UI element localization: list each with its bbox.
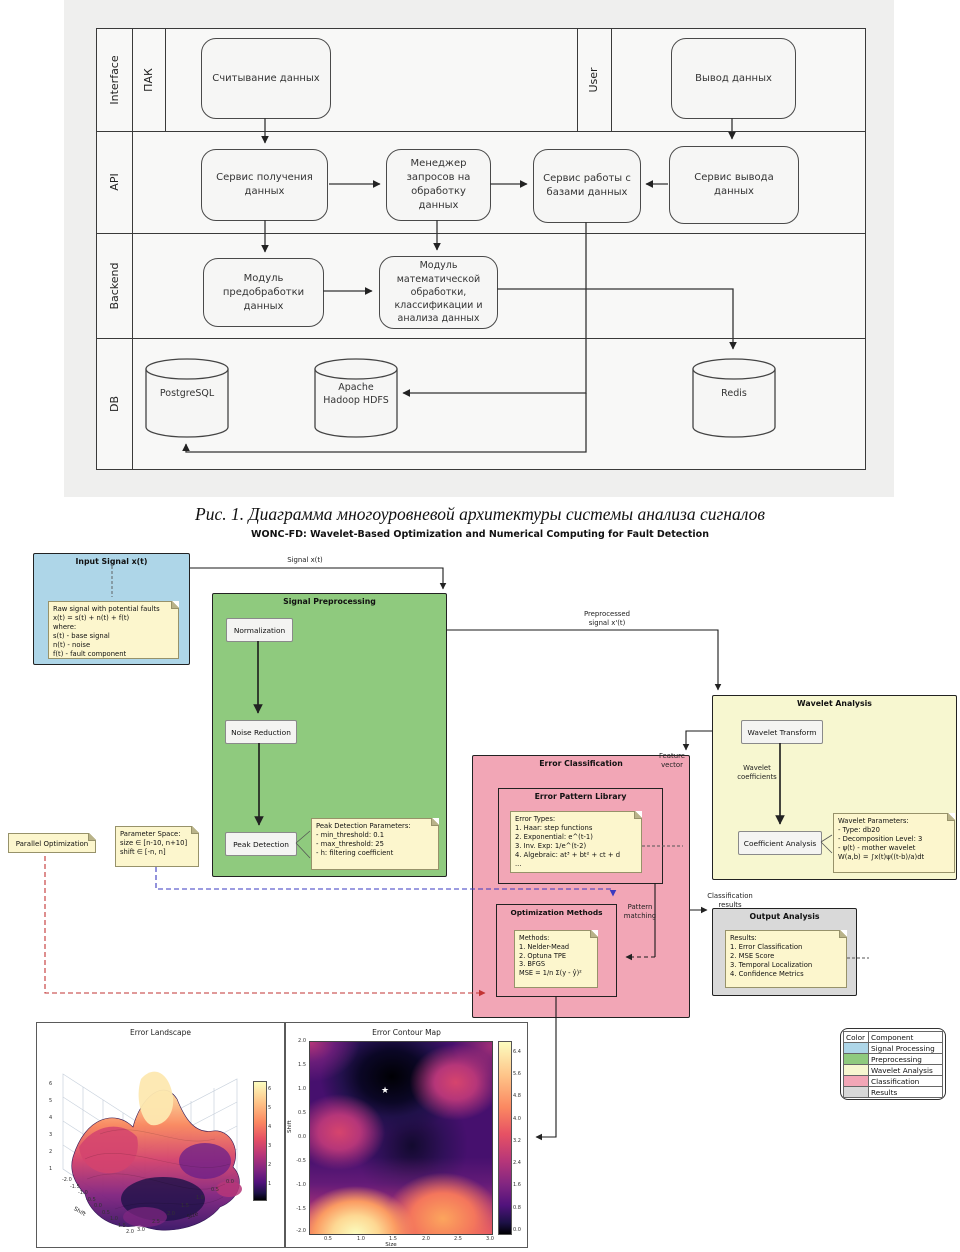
node-preprocessing-module: Модуль предобработки данных [203, 258, 324, 327]
flowchart-title: WONC-FD: Wavelet-Based Optimization and … [0, 529, 960, 540]
note-line: Peak Detection Parameters: [316, 822, 434, 831]
label-line: coefficients [733, 773, 781, 782]
cluster-input-signal: Input Signal x(t) Raw signal with potent… [33, 553, 190, 665]
note-line: 1. Error Classification [730, 943, 842, 952]
surface-colorbar [253, 1081, 267, 1201]
note-line: 2. MSE Score [730, 952, 842, 961]
parameter-space-note: Parameter Space: size ∈ [n-10, n+10] shi… [115, 826, 199, 867]
note-line: 3. BFGS [519, 960, 593, 969]
cbar-tick: 5.6 [513, 1071, 521, 1077]
shift-tick: 1.0 [110, 1216, 118, 1222]
step-coefficient-analysis: Coefficient Analysis [738, 831, 822, 855]
note-line: ... [515, 860, 637, 869]
label-line: results [700, 901, 760, 910]
layer-label-interface: Interface [108, 50, 122, 110]
inner-title: Error Pattern Library [499, 792, 662, 801]
note-line: Error Types: [515, 815, 637, 824]
legend-header-color: Color [844, 1032, 869, 1043]
cbar-tick: 4 [268, 1124, 271, 1130]
cbar-tick: 3.2 [513, 1138, 521, 1144]
edge-label-feature-vector: Feature vector [650, 752, 694, 770]
note-line: Parameter Space: [120, 830, 194, 839]
contour-xlabel: Size [385, 1242, 396, 1248]
parallel-optimization-note: Parallel Optimization [8, 833, 96, 853]
layer-label-db: DB [108, 374, 122, 434]
architecture-diagram: Interface API Backend DB ПАК User Считыв… [96, 28, 866, 470]
cbar-tick: 5 [268, 1105, 271, 1111]
z-tick: 1 [49, 1166, 52, 1172]
error-contour-panel: Error Contour Map ★ 2.0 1.5 1.0 0.5 0.0 … [285, 1022, 528, 1248]
shift-tick: 0.5 [102, 1210, 110, 1216]
label-line: Wavelet [733, 764, 781, 773]
note-line: - min_threshold: 0.1 [316, 831, 434, 840]
note-line: 3. Temporal Localization [730, 961, 842, 970]
node-request-manager: Менеджер запросов на обработку данных [386, 149, 491, 221]
db-postgresql: PostgreSQL [144, 356, 230, 440]
note-line: 1. Nelder-Mead [519, 943, 593, 952]
note-line: shift ∈ [-n, n] [120, 848, 194, 857]
node-math-module: Модуль математической обработки, классиф… [379, 256, 498, 329]
node-output-data: Вывод данных [671, 38, 796, 119]
note-line: n(t) - noise [53, 641, 174, 650]
user-lane-divider [611, 29, 612, 131]
note-line: 4. Confidence Metrics [730, 970, 842, 979]
cluster-signal-preprocessing: Signal Preprocessing Normalization Noise… [212, 593, 447, 877]
legend-swatch-preprocessing [844, 1054, 869, 1065]
cluster-output-analysis: Output Analysis Results: 1. Error Classi… [712, 908, 857, 996]
note-line: Methods: [519, 934, 593, 943]
contour-colorbar [498, 1041, 512, 1235]
edge-label-classification-results: Classification results [700, 892, 760, 910]
legend-label: Results [869, 1087, 943, 1098]
note-line: Parallel Optimization [13, 837, 91, 852]
row-divider [97, 233, 865, 234]
note-line: Raw signal with potential faults [53, 605, 174, 614]
cbar-tick: 6.4 [513, 1049, 521, 1055]
note-line: - Type: db20 [838, 826, 950, 835]
error-landscape-panel: Error Landscape [36, 1022, 285, 1248]
note-line: - max_threshold: 25 [316, 840, 434, 849]
note-line: - Decomposition Level: 3 [838, 835, 950, 844]
cluster-title: Signal Preprocessing [213, 597, 446, 606]
y-tick: 0.5 [292, 1110, 306, 1116]
note-line: W(a,b) = ∫x(t)ψ((t-b)/a)dt [838, 853, 950, 862]
label-line: Feature [650, 752, 694, 761]
cbar-tick: 3 [268, 1143, 271, 1149]
input-signal-note: Raw signal with potential faults x(t) = … [48, 601, 179, 659]
wavelet-parameters-note: Wavelet Parameters: - Type: db20 - Decom… [833, 813, 955, 873]
z-tick: 5 [49, 1098, 52, 1104]
label-line: matching [618, 912, 662, 921]
cbar-tick: 2.4 [513, 1160, 521, 1166]
z-tick: 2 [49, 1149, 52, 1155]
pak-lane-divider [165, 29, 166, 131]
db-label: Redis [691, 388, 777, 401]
edge-label-pattern-matching: Pattern matching [618, 903, 662, 921]
plot-title: Error Landscape [37, 1028, 284, 1037]
legend-header-component: Component [869, 1032, 943, 1043]
cbar-tick: 4.0 [513, 1116, 521, 1122]
node-read-data: Считывание данных [201, 38, 331, 119]
y-tick: 2.0 [292, 1038, 306, 1044]
x-tick: 2.5 [454, 1236, 462, 1242]
y-tick: 0.0 [292, 1134, 306, 1140]
legend-swatch-signal-processing [844, 1043, 869, 1054]
cbar-tick: 0.0 [513, 1227, 521, 1233]
cbar-tick: 6 [268, 1086, 271, 1092]
shift-tick: 1.5 [118, 1223, 126, 1229]
note-line: Wavelet Parameters: [838, 817, 950, 826]
note-line: Results: [730, 934, 842, 943]
cluster-title: Output Analysis [713, 912, 856, 921]
size-tick: 1.5 [181, 1203, 189, 1209]
y-tick: 1.5 [292, 1062, 306, 1068]
db-label: PostgreSQL [144, 388, 230, 401]
legend-label: Wavelet Analysis [869, 1065, 943, 1076]
error-types-note: Error Types: 1. Haar: step functions 2. … [510, 811, 642, 873]
optimization-methods-box: Optimization Methods Methods: 1. Nelder-… [496, 904, 617, 997]
cluster-wavelet-analysis: Wavelet Analysis Wavelet Transform Coeff… [712, 695, 957, 880]
note-line: 1. Haar: step functions [515, 824, 637, 833]
node-output-service: Сервис вывода данных [669, 146, 799, 224]
error-pattern-library-box: Error Pattern Library Error Types: 1. Ha… [498, 788, 663, 884]
shift-tick: -1.0 [78, 1190, 88, 1196]
node-ingest-service: Сервис получения данных [201, 149, 328, 221]
note-line: 2. Exponential: e^(t-1) [515, 833, 637, 842]
size-tick: 1.0 [196, 1195, 204, 1201]
methods-note: Methods: 1. Nelder-Mead 2. Optuna TPE 3.… [514, 930, 598, 988]
label-line: Pattern [618, 903, 662, 912]
cbar-tick: 0.8 [513, 1205, 521, 1211]
legend-table: Color Component Signal Processing Prepro… [840, 1028, 946, 1100]
legend-swatch-wavelet-analysis [844, 1065, 869, 1076]
y-tick: -1.0 [292, 1182, 306, 1188]
shift-tick: 2.0 [126, 1229, 134, 1235]
step-wavelet-transform: Wavelet Transform [741, 720, 823, 744]
db-label: Apache Hadoop HDFS [313, 382, 399, 408]
inner-title: Optimization Methods [497, 908, 616, 917]
legend-label: Signal Processing [869, 1043, 943, 1054]
legend-swatch-classification [844, 1076, 869, 1087]
note-line: 3. Inv. Exp: 1/e^(t-2) [515, 842, 637, 851]
y-tick: -2.0 [292, 1228, 306, 1234]
legend-label: Preprocessing [869, 1054, 943, 1065]
size-tick: 0.0 [226, 1179, 234, 1185]
plot-title: Error Contour Map [286, 1028, 527, 1037]
peak-detection-note: Peak Detection Parameters: - min_thresho… [311, 818, 439, 870]
note-line: size ∈ [n-10, n+10] [120, 839, 194, 848]
lane-label-user: User [587, 50, 601, 110]
note-line: - ψ(t) - mother wavelet [838, 844, 950, 853]
x-tick: 1.0 [357, 1236, 365, 1242]
layer-label-divider [132, 29, 133, 469]
note-line: 4. Algebraic: at³ + bt² + ct + d [515, 851, 637, 860]
y-tick: -0.5 [292, 1158, 306, 1164]
results-note: Results: 1. Error Classification 2. MSE … [725, 930, 847, 988]
layer-label-api: API [108, 152, 122, 212]
label-line: vector [650, 761, 694, 770]
size-tick: 2.5 [152, 1219, 160, 1225]
size-tick: 2.0 [167, 1211, 175, 1217]
legend-swatch-results [844, 1087, 869, 1098]
legend-label: Classification [869, 1076, 943, 1087]
label-line: signal x'(t) [576, 619, 638, 628]
x-tick: 2.0 [422, 1236, 430, 1242]
layer-label-backend: Backend [108, 256, 122, 316]
cbar-tick: 1.6 [513, 1182, 521, 1188]
row-divider [97, 338, 865, 339]
cbar-tick: 1 [268, 1181, 271, 1187]
step-normalization: Normalization [226, 618, 293, 642]
note-line: f(t) - fault component [53, 650, 174, 659]
edge-label-wavelet-coefficients: Wavelet coefficients [733, 764, 781, 782]
step-peak-detection: Peak Detection [225, 832, 297, 856]
shift-tick: -2.0 [62, 1177, 72, 1183]
contour-ylabel: Shift [287, 1120, 293, 1133]
cbar-tick: 2 [268, 1162, 271, 1168]
cbar-tick: 4.8 [513, 1093, 521, 1099]
figure1-caption: Рис. 1. Диаграмма многоуровневой архитек… [0, 504, 960, 525]
edge-label-signal: Signal x(t) [270, 556, 340, 565]
x-tick: 3.0 [486, 1236, 494, 1242]
step-noise-reduction: Noise Reduction [225, 720, 297, 744]
contour-plot: ★ [309, 1041, 493, 1235]
z-tick: 4 [49, 1115, 52, 1121]
db-hdfs: Apache Hadoop HDFS [313, 356, 399, 440]
note-line: - h: filtering coefficient [316, 849, 434, 858]
note-line: s(t) - base signal [53, 632, 174, 641]
row-divider [97, 131, 865, 132]
db-redis: Redis [691, 356, 777, 440]
optimum-star-icon: ★ [381, 1086, 389, 1096]
edge-label-preprocessed: Preprocessed signal x'(t) [576, 610, 638, 628]
note-line: x(t) = s(t) + n(t) + f(t) [53, 614, 174, 623]
z-tick: 6 [49, 1081, 52, 1087]
label-line: Classification [700, 892, 760, 901]
note-line: MSE = 1/n Σ(y - ŷ)² [519, 969, 593, 978]
size-tick: 0.5 [211, 1187, 219, 1193]
cluster-title: Wavelet Analysis [713, 699, 956, 708]
y-tick: -1.5 [292, 1206, 306, 1212]
cluster-error-classification: Error Classification Error Pattern Libra… [472, 755, 690, 1018]
node-db-service: Сервис работы с базами данных [533, 149, 641, 223]
note-line: 2. Optuna TPE [519, 952, 593, 961]
y-tick: 1.0 [292, 1086, 306, 1092]
note-line: where: [53, 623, 174, 632]
z-tick: 3 [49, 1132, 52, 1138]
user-lane-divider [577, 29, 578, 131]
size-tick: 3.0 [137, 1227, 145, 1233]
shift-tick: 0.0 [94, 1203, 102, 1209]
x-tick: 0.5 [324, 1236, 332, 1242]
label-line: Preprocessed [576, 610, 638, 619]
cluster-title: Input Signal x(t) [34, 557, 189, 566]
lane-label-pak: ПАК [142, 50, 156, 110]
